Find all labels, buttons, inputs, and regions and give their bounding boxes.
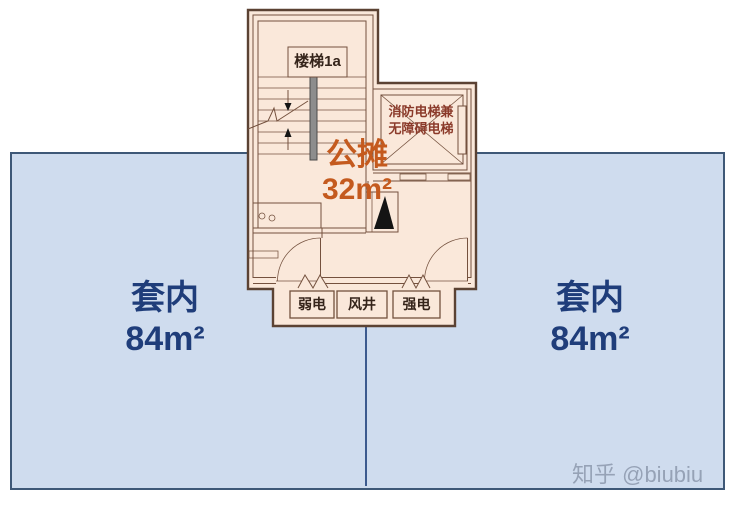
utility-label-air-shaft: 风井 [337, 291, 387, 318]
watermark: 知乎 @biubiu [572, 457, 722, 489]
elevator-label: 消防电梯兼 无障碍电梯 [374, 103, 468, 137]
suite-right-name: 套内 [520, 278, 660, 319]
suite-right-value: 84m² [520, 319, 660, 360]
utility-label-weak-electric: 弱电 [290, 291, 334, 318]
elevator-label-line2: 无障碍电梯 [374, 120, 468, 137]
suite-left-label: 套内 84m² [95, 278, 235, 360]
suite-left-name: 套内 [95, 278, 235, 319]
suite-right-label: 套内 84m² [520, 278, 660, 360]
shared-area-value: 32m² [297, 172, 417, 207]
floorplan-diagram: 楼梯1a 消防电梯兼 无障碍电梯 公摊 32m² 弱电 风井 强电 套内 84m… [0, 0, 733, 506]
utility-label-strong-electric: 强电 [393, 291, 440, 318]
shared-area-name: 公摊 [297, 137, 417, 172]
suite-left-value: 84m² [95, 319, 235, 360]
stairwell-label: 楼梯1a [288, 47, 347, 77]
shared-area-label: 公摊 32m² [297, 137, 417, 207]
floorplan-drawing [0, 0, 733, 506]
elevator-label-line1: 消防电梯兼 [374, 103, 468, 120]
